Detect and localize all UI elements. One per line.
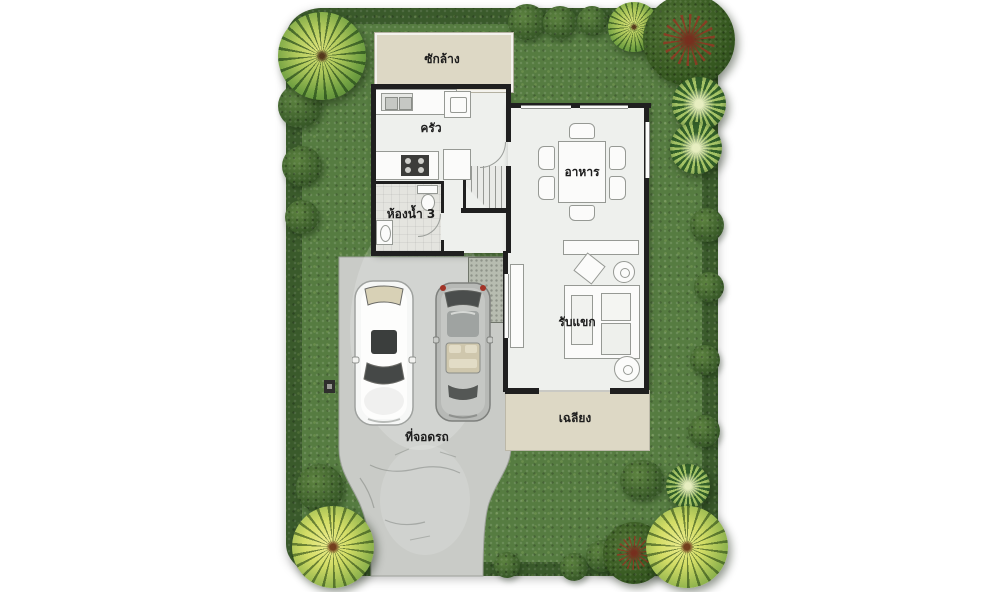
wall-hall-east-upper — [506, 84, 511, 142]
wall-stair-south — [461, 208, 511, 213]
wall-porch-post-right — [610, 388, 649, 394]
wall-bath-top — [371, 181, 444, 184]
porch-label: เฉลียง — [559, 412, 592, 424]
bathroom-sink — [376, 220, 393, 245]
porch-door-sill — [539, 390, 610, 392]
tree-bottom-left-yellow — [292, 506, 374, 588]
window-living-west — [504, 274, 509, 338]
dining-chair — [569, 205, 595, 221]
side-table-round — [613, 261, 635, 283]
laundry-label: ซักล้าง — [424, 53, 459, 65]
wall-kitchen-top — [371, 84, 511, 89]
tree-bottom-right-yellow — [646, 506, 728, 588]
side-table-round — [614, 356, 640, 382]
parking-label: ที่จอดรถ — [405, 431, 449, 443]
floor-plan-scene: ซักล้าง ครัว ห้องน้ำ 3 อาหาร รับแขก เฉลี… — [0, 0, 1000, 592]
console-table — [563, 240, 639, 255]
dining-label: อาหาร — [564, 166, 599, 178]
living-label: รับแขก — [558, 316, 595, 328]
dining-chair — [538, 146, 555, 170]
wall-porch-post-left — [505, 388, 539, 394]
wall-bath-right — [441, 181, 444, 213]
tree-palm-right-2 — [670, 122, 722, 174]
kitchen-label: ครัว — [420, 122, 441, 134]
window-dining-north — [521, 105, 571, 110]
tree-red-foliage — [663, 14, 715, 66]
kitchen-stove — [401, 155, 429, 176]
kitchen-island — [443, 149, 471, 180]
toilet-tank — [417, 185, 438, 194]
kitchen-sink — [381, 93, 413, 111]
wall-west — [371, 84, 376, 256]
kitchen-appliance — [444, 91, 471, 118]
car-white — [352, 279, 416, 427]
dining-chair — [609, 146, 626, 170]
utility-meter — [324, 380, 335, 393]
dining-chair — [569, 123, 595, 139]
tree-palm-bottom-right — [666, 464, 710, 508]
wall-southwest — [371, 251, 464, 256]
window-dining-north-2 — [580, 105, 628, 110]
tree-top-left — [278, 12, 366, 100]
car-silver — [433, 281, 493, 423]
wall-bath-right-lower — [441, 240, 444, 253]
bathroom-label: ห้องน้ำ 3 — [387, 208, 435, 220]
dining-chair — [609, 176, 626, 200]
dining-chair — [538, 176, 555, 200]
tv-cabinet — [510, 264, 524, 348]
window-east — [645, 122, 650, 178]
